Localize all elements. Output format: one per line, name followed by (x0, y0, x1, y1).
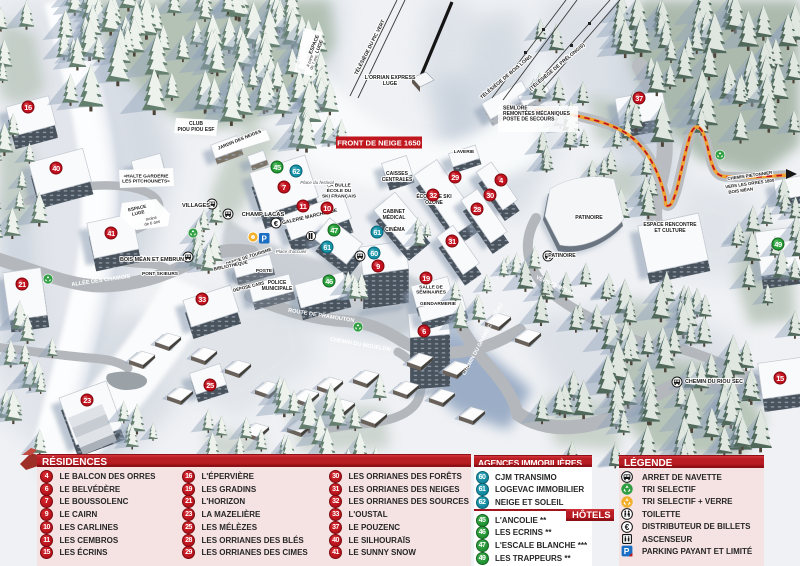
svg-text:P: P (624, 546, 630, 556)
svg-text:€: € (625, 522, 630, 531)
